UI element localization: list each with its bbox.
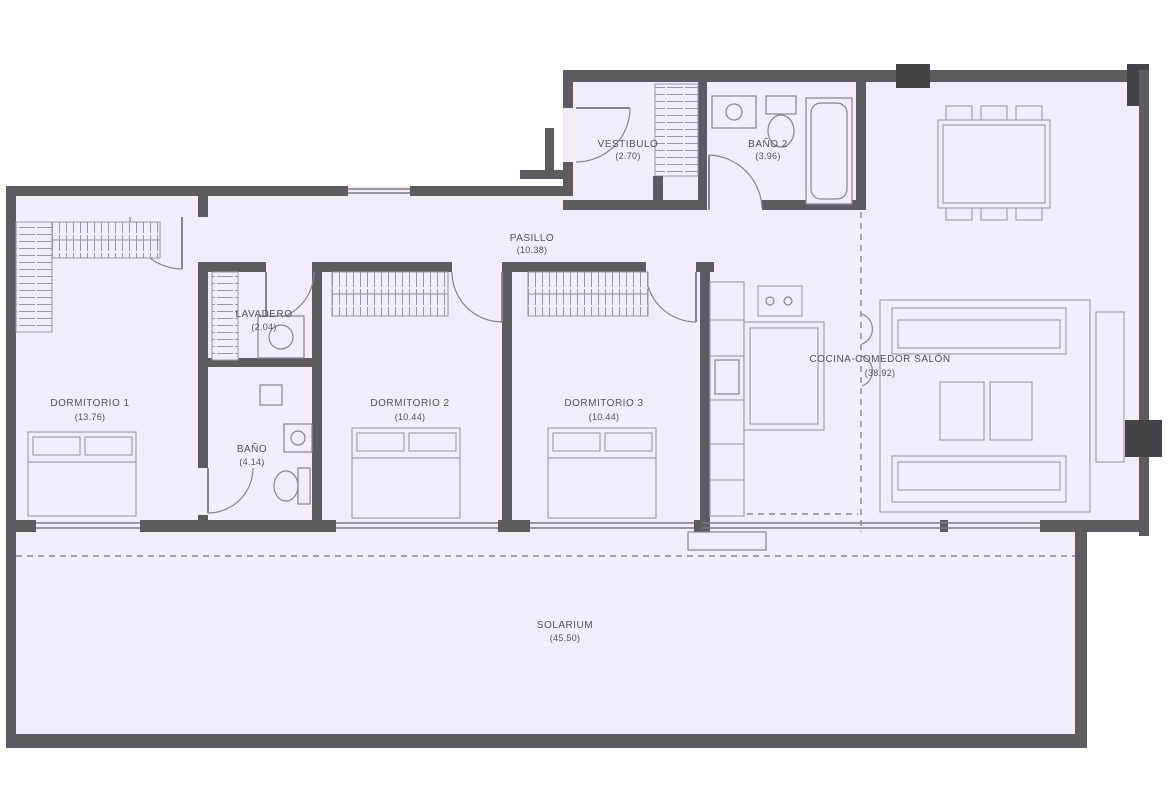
wall-segment [6,186,16,746]
room-area-bano: (4.14) [239,457,264,467]
wall-segment [1139,70,1149,536]
door-threshold [688,532,766,550]
bed-dormitorio1 [28,432,136,516]
room-label-lavadero: LAVADERO [236,309,293,320]
wall-segment [563,70,573,108]
room-area-salon: (38.92) [865,368,896,378]
wall-segment [698,70,707,202]
room-label-dormitorio2: DORMITORIO 2 [370,398,449,409]
wall-column [896,64,930,88]
coffee-table [990,382,1032,440]
sideboard [1096,312,1124,462]
bathroom-shelf [260,385,282,405]
room-label-dormitorio3: DORMITORIO 3 [564,398,643,409]
wall-segment [563,200,707,210]
wall-segment [316,262,452,272]
bathroom2-sink [712,96,756,128]
room-label-bano: BAÑO [237,442,267,455]
closet-vestibulo [655,84,698,176]
kitchen-counter [710,282,744,516]
floor-plan-svg: VESTIBULO (2.70) BAÑO 2 (3.96) PASILLO (… [0,0,1170,785]
wall-segment [1075,532,1087,748]
room-label-vestibulo: VESTIBULO [598,139,659,150]
room-area-pasillo: (10.38) [517,245,548,255]
room-area-dormitorio1: (13.76) [75,412,106,422]
room-area-dormitorio2: (10.44) [395,412,426,422]
bathroom2-bathtub [806,98,852,204]
wall-segment [312,262,322,532]
room-area-solarium: (45.50) [550,633,581,643]
wall-segment [198,269,208,468]
room-label-salon: COCINA-COMEDOR SALÓN [809,352,950,365]
room-label-pasillo: PASILLO [510,233,554,244]
floor-plan-canvas: VESTIBULO (2.70) BAÑO 2 (3.96) PASILLO (… [0,0,1170,785]
wall-segment [6,186,348,196]
room-label-solarium: SOLARIUM [537,620,593,631]
wall-segment [410,186,573,196]
bed-dormitorio3 [548,428,656,518]
wall-segment [6,734,1087,748]
wall-segment [6,520,36,532]
kitchen-stove [758,286,802,316]
wall-segment [198,515,208,532]
wall-segment [502,262,646,272]
bathroom-sink [284,424,312,452]
kitchen-island [744,322,824,430]
room-label-bano2: BAÑO 2 [748,137,788,150]
wall-column [1125,420,1162,457]
room-area-dormitorio3: (10.44) [589,412,620,422]
closet-lavadero [212,272,238,360]
wall-segment [140,520,336,532]
wall-segment [198,196,208,217]
bed-dormitorio2 [352,428,460,518]
floor-area-solarium [6,530,1087,748]
room-label-dormitorio1: DORMITORIO 1 [50,398,129,409]
wall-segment [653,176,663,202]
sofa-bottom [892,456,1066,502]
wall-step [545,128,554,179]
wall-segment [1040,520,1149,532]
dining-table [938,106,1050,220]
wall-segment [198,262,266,272]
wall-segment [700,262,710,532]
room-area-lavadero: (2.04) [251,322,276,332]
sofa-top [892,308,1066,354]
coffee-table [940,382,984,440]
bathroom-toilet [274,468,310,504]
room-area-vestibulo: (2.70) [615,151,640,161]
closet-dormitorio1-left [16,222,52,332]
wall-segment [856,70,866,210]
wall-mullion [940,520,948,532]
wall-segment [502,262,512,532]
room-area-bano2: (3.96) [755,151,780,161]
